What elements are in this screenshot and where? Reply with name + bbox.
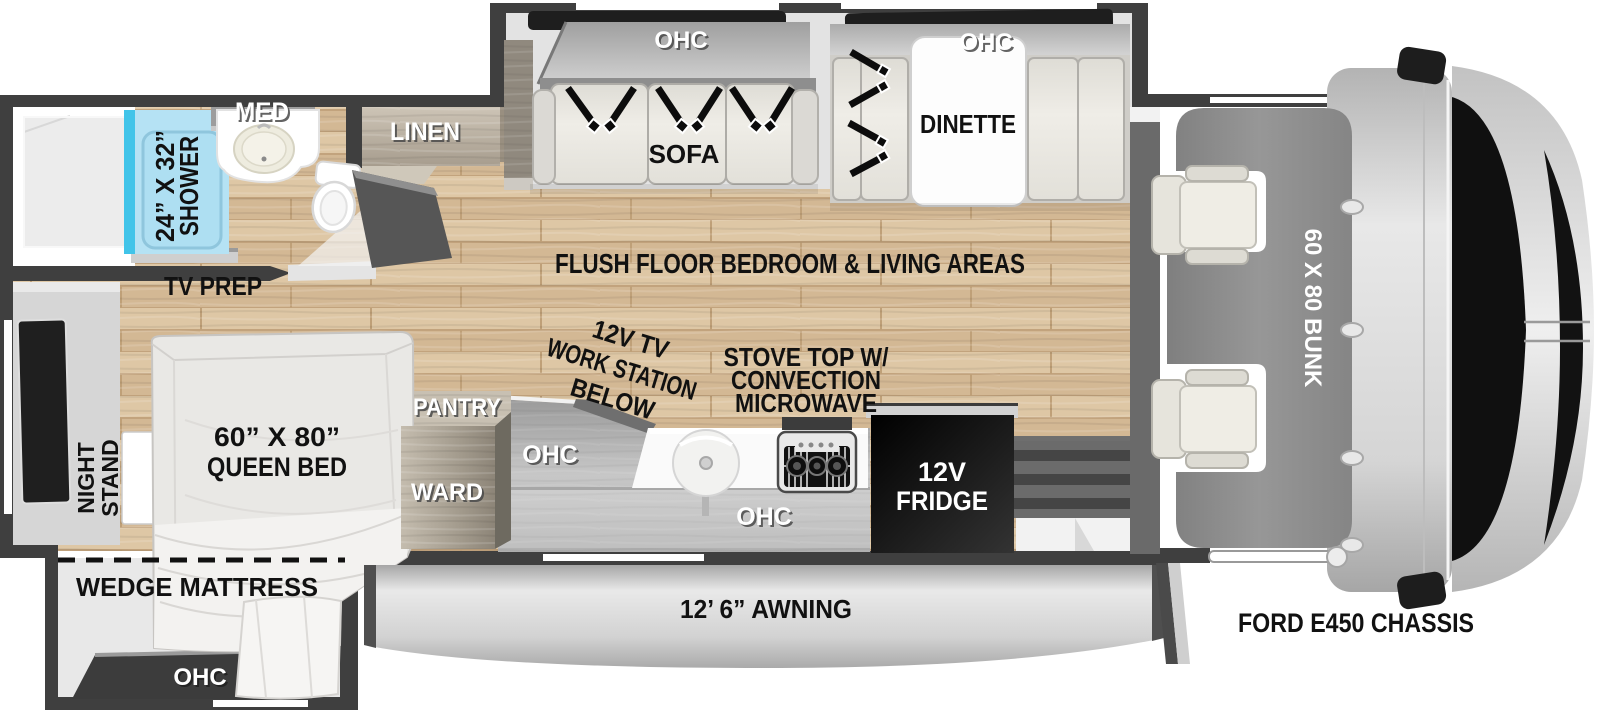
- svg-text:NIGHT: NIGHT: [73, 442, 99, 514]
- svg-text:OHC: OHC: [522, 441, 578, 469]
- svg-text:OHC: OHC: [173, 664, 226, 691]
- svg-text:OHC: OHC: [736, 503, 792, 531]
- svg-text:60” X 80”: 60” X 80”: [214, 422, 340, 452]
- svg-text:OHC: OHC: [654, 27, 707, 54]
- svg-text:LINEN: LINEN: [390, 118, 460, 146]
- svg-text:FLUSH FLOOR BEDROOM & LIVING A: FLUSH FLOOR BEDROOM & LIVING AREAS: [555, 248, 1025, 279]
- svg-text:OHC: OHC: [959, 29, 1012, 56]
- svg-text:12V: 12V: [918, 457, 966, 487]
- svg-text:FRIDGE: FRIDGE: [896, 486, 988, 516]
- svg-text:PANTRY: PANTRY: [413, 394, 501, 421]
- svg-text:SHOWER: SHOWER: [174, 136, 204, 236]
- svg-text:SOFA: SOFA: [649, 139, 720, 169]
- svg-text:DINETTE: DINETTE: [920, 109, 1016, 139]
- svg-text:60 X 80 BUNK: 60 X 80 BUNK: [1299, 229, 1326, 388]
- svg-text:STAND: STAND: [97, 439, 123, 517]
- svg-text:WARD: WARD: [411, 479, 483, 506]
- svg-text:WEDGE MATTRESS: WEDGE MATTRESS: [76, 572, 318, 602]
- svg-text:MICROWAVE: MICROWAVE: [735, 388, 877, 418]
- svg-text:12’ 6” AWNING: 12’ 6” AWNING: [680, 594, 852, 624]
- svg-text:MED: MED: [235, 98, 289, 126]
- svg-text:TV PREP: TV PREP: [164, 271, 262, 301]
- svg-text:FORD E450 CHASSIS: FORD E450 CHASSIS: [1238, 608, 1474, 638]
- svg-text:QUEEN BED: QUEEN BED: [207, 452, 347, 482]
